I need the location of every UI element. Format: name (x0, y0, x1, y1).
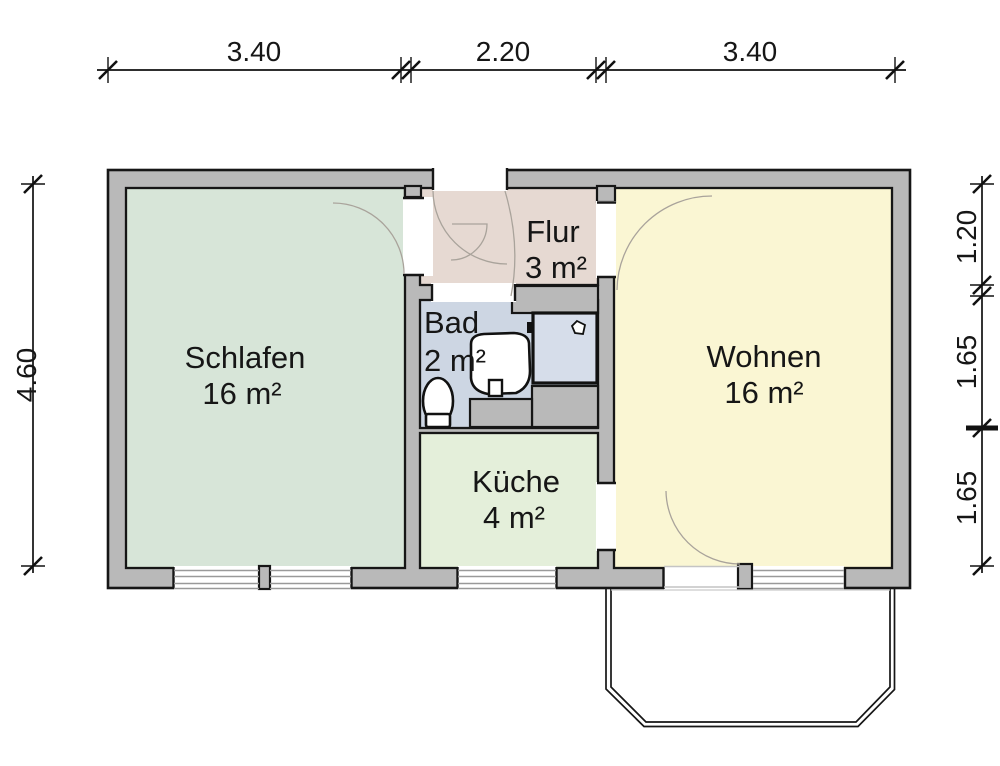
dim-top-2: 2.20 (476, 36, 531, 67)
window-schlafen-left (174, 566, 259, 591)
wall-above-shower (512, 286, 598, 313)
bay-window (606, 588, 895, 727)
window-post-wohnen (738, 564, 752, 589)
wohnen-door-opening (596, 201, 616, 278)
wall-stub-w2-top (597, 186, 615, 202)
label-flur-area: 3 m² (525, 250, 587, 285)
bad-door-opening (431, 283, 516, 302)
label-kueche-area: 4 m² (483, 500, 545, 535)
dimension-left: 4.60 (11, 175, 45, 575)
shower-handle (527, 322, 534, 333)
dim-right-3: 1.65 (951, 471, 982, 526)
label-bad-area: 2 m² (424, 343, 486, 378)
dimension-right: 1.20 1.65 1.65 (951, 175, 998, 575)
window-wohnen (753, 566, 844, 591)
dim-right-2: 1.65 (951, 335, 982, 390)
wall-stub-w1-top (405, 186, 421, 197)
label-kueche-name: Küche (472, 464, 560, 499)
sink-pedestal (489, 380, 502, 396)
entrance-opening (433, 166, 507, 191)
shower (533, 313, 597, 383)
label-wohnen-area: 16 m² (724, 375, 803, 410)
label-flur-name: Flur (526, 214, 579, 249)
dim-right-1: 1.20 (951, 210, 982, 265)
label-wohnen-name: Wohnen (707, 339, 822, 374)
dimension-top: 3.40 2.20 3.40 (97, 36, 906, 83)
floor-plan-canvas: Schlafen 16 m² Flur 3 m² Bad 2 m² Küche … (0, 0, 1000, 766)
kueche-passage-opening (596, 482, 616, 551)
floor-plan: Schlafen 16 m² Flur 3 m² Bad 2 m² Küche … (0, 0, 1000, 766)
bay-window-outer-line (606, 588, 895, 727)
bay-window-inner-line (611, 588, 890, 722)
label-schlafen-name: Schlafen (185, 340, 306, 375)
window-post-schlafen (259, 566, 270, 589)
window-schlafen-right (271, 566, 351, 591)
wall-under-sink (470, 399, 532, 427)
dim-top-3: 3.40 (723, 36, 778, 67)
dim-left-1: 4.60 (11, 348, 42, 403)
label-bad-name: Bad (424, 305, 479, 340)
dim-top-1: 3.40 (227, 36, 282, 67)
schlafen-door-opening (403, 197, 433, 276)
label-schlafen-area: 16 m² (202, 376, 281, 411)
toilet-tank (426, 414, 450, 427)
wall-under-shower (532, 386, 598, 427)
window-kueche (458, 566, 556, 591)
